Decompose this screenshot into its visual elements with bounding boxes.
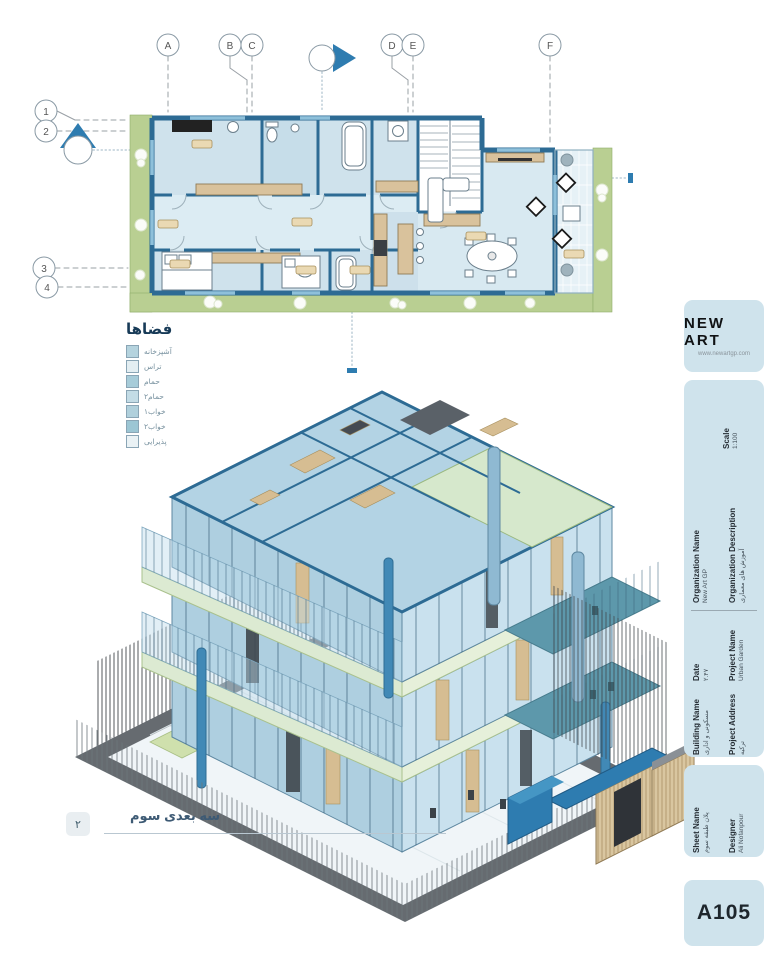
designer-field: Designer Ali Nofanpour <box>728 814 745 853</box>
legend-item: خواب۱ <box>126 404 216 419</box>
legend-swatch <box>126 360 139 373</box>
match-line-tick-right <box>628 173 633 183</box>
sheet-name-field: Sheet Name پلان طبقه سوم <box>692 807 710 853</box>
legend-swatch <box>126 375 139 388</box>
legend-item: پذیرایی <box>126 434 216 449</box>
logo: NEW ART <box>684 315 764 349</box>
organization-description-value: آموزش های معماری <box>738 508 746 603</box>
legend-item: تراس <box>126 359 216 374</box>
sheet-name-label: Sheet Name <box>692 807 701 853</box>
titleblock-logo-panel: NEW ART www.newartgp.com <box>684 300 764 372</box>
grid-bubble-label: 2 <box>43 127 49 138</box>
view-title-rule <box>104 833 446 834</box>
grid-bubble-label: 3 <box>41 264 47 275</box>
legend-label: پذیرایی <box>144 437 167 446</box>
designer-label: Designer <box>728 814 737 853</box>
floor-plan <box>130 115 612 312</box>
legend-title: فضاها <box>126 320 186 338</box>
legend-item: حمام <box>126 374 216 389</box>
project-address-field: Project Address ترکیه <box>728 694 746 755</box>
view-title: سه بعدی سوم <box>104 808 246 824</box>
legend-label: حمام <box>144 377 160 386</box>
titleblock-number-panel: A105 <box>684 880 764 946</box>
grid-bubble-label: D <box>388 41 395 52</box>
grid-bubble-label: 4 <box>44 283 50 294</box>
grid-bubble-label: A <box>165 41 172 52</box>
section-marker-left <box>60 123 96 164</box>
sheet-number: A105 <box>697 901 751 925</box>
grid-bubble-label: F <box>547 41 553 52</box>
titleblock-main-panel: Building Name مسکونی و اداری Project Add… <box>684 380 764 757</box>
building-name-label: Building Name <box>692 699 701 755</box>
date-label: Date <box>692 664 701 681</box>
scale-label: Scale <box>722 428 731 449</box>
titleblock-sheet-panel: Sheet Name پلان طبقه سوم Designer Ali No… <box>684 765 764 857</box>
date-value: ۲.۴۷ <box>702 664 710 681</box>
section-marker-top <box>309 44 356 72</box>
legend-item: آشپزخانه <box>126 344 216 359</box>
organization-description-label: Organization Description <box>728 508 737 603</box>
project-name-value: Urban Garden <box>738 630 745 681</box>
legend-label: خواب۲ <box>144 422 166 431</box>
grid-bubble-label: B <box>227 41 234 52</box>
project-address-label: Project Address <box>728 694 737 755</box>
match-line-tick-bottom <box>347 368 357 373</box>
legend-label: حمام۲ <box>144 392 164 401</box>
view-number-badge: ۲ <box>66 812 90 836</box>
designer-value: Ali Nofanpour <box>738 814 745 853</box>
scale-field: Scale 1:100 <box>722 428 739 449</box>
legend-item: خواب۲ <box>126 419 216 434</box>
project-address-value: ترکیه <box>738 694 746 755</box>
legend: فضاها آشپزخانه تراس حمام حمام۲ خواب۱ خوا… <box>126 320 216 449</box>
grid-bubble-label: 1 <box>43 107 49 118</box>
legend-label: آشپزخانه <box>144 347 172 356</box>
building-name-value: مسکونی و اداری <box>702 699 710 755</box>
titleblock-divider <box>691 610 757 611</box>
organization-description-field: Organization Description آموزش های معمار… <box>728 508 746 603</box>
legend-swatch <box>126 405 139 418</box>
date-field: Date ۲.۴۷ <box>692 664 710 681</box>
grid-bubble-label: E <box>410 41 417 52</box>
sheet-name-value: پلان طبقه سوم <box>702 807 710 853</box>
logo-url: www.newartgp.com <box>698 351 750 357</box>
view-label: ۲ سه بعدی سوم <box>66 808 466 842</box>
building-name-field: Building Name مسکونی و اداری <box>692 699 710 755</box>
legend-swatch <box>126 390 139 403</box>
organization-name-value: New Art GP <box>702 530 709 603</box>
grid-bubble-label: C <box>248 41 255 52</box>
organization-name-label: Organization Name <box>692 530 701 603</box>
project-name-field: Project Name Urban Garden <box>728 630 745 681</box>
legend-swatch <box>126 435 139 448</box>
legend-label: تراس <box>144 362 161 371</box>
project-name-label: Project Name <box>728 630 737 681</box>
legend-label: خواب۱ <box>144 407 166 416</box>
legend-swatch <box>126 345 139 358</box>
scale-value: 1:100 <box>732 428 739 449</box>
isometric-view <box>75 392 694 922</box>
organization-name-field: Organization Name New Art GP <box>692 530 709 603</box>
legend-item: حمام۲ <box>126 389 216 404</box>
legend-swatch <box>126 420 139 433</box>
architectural-sheet: A B C D E F 1 2 3 4 <box>0 0 768 955</box>
